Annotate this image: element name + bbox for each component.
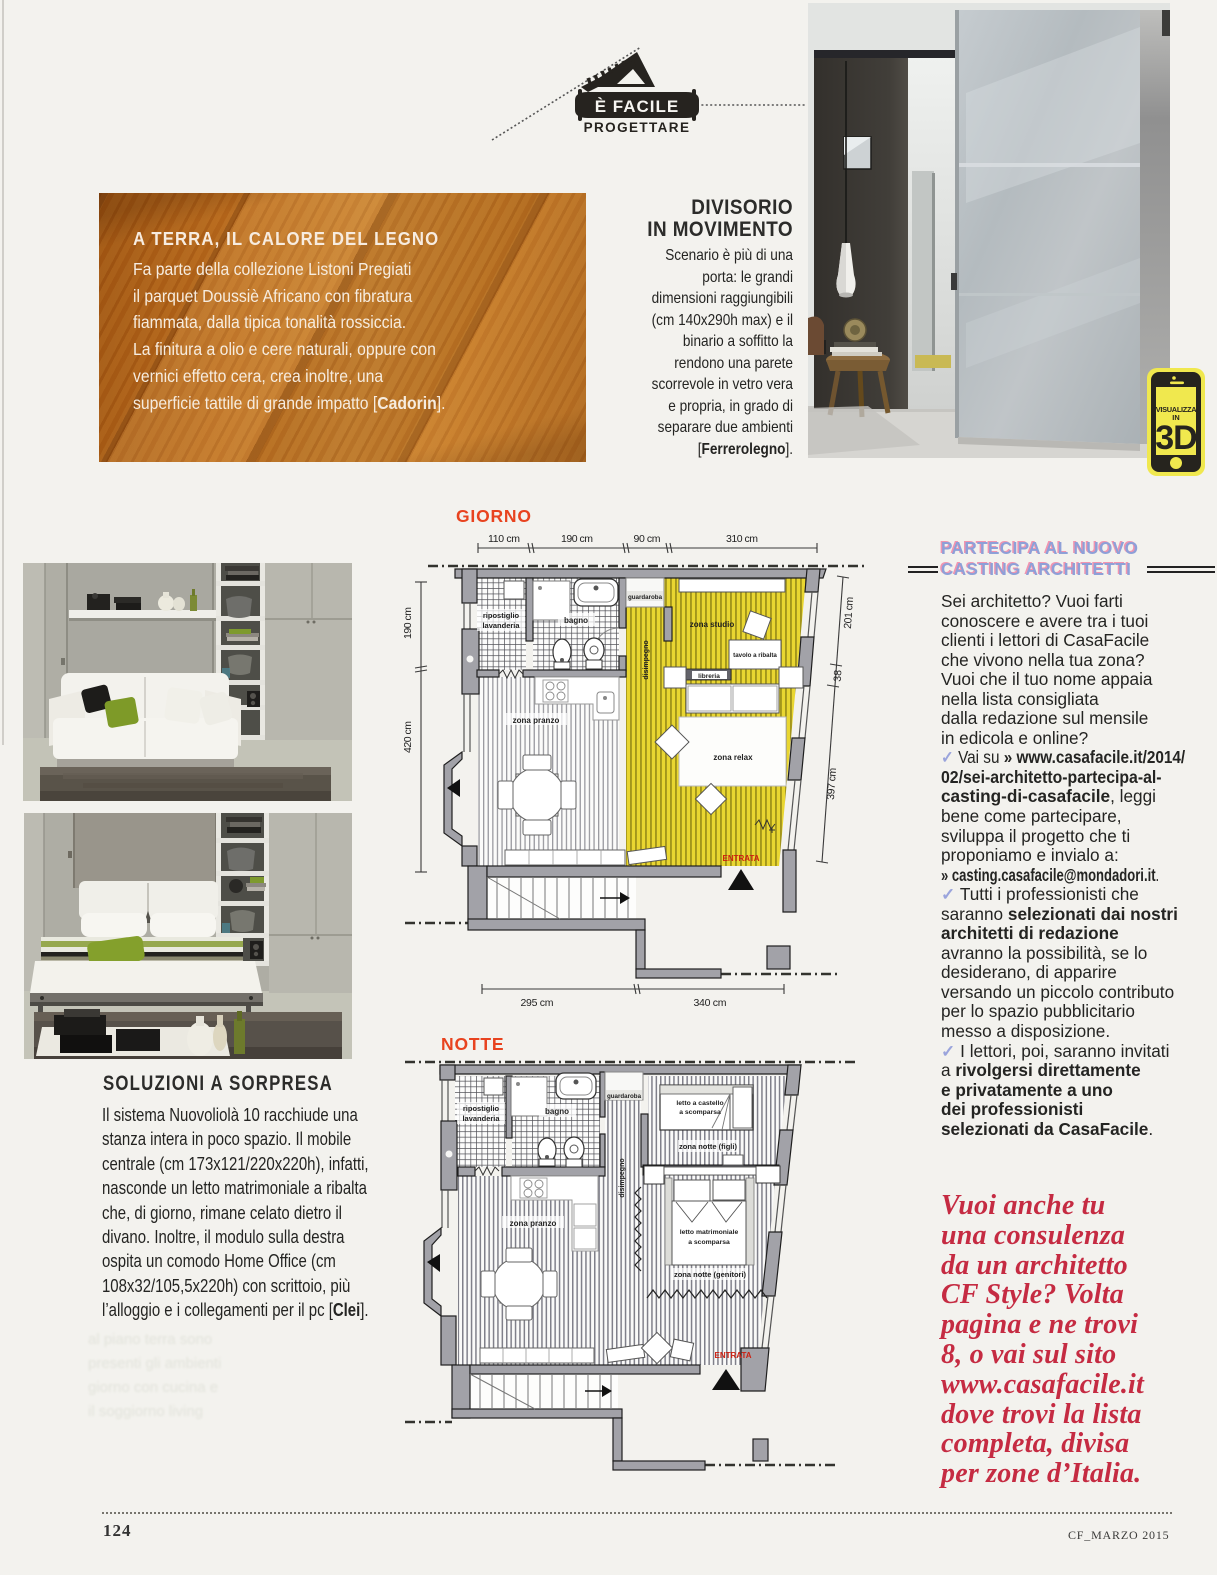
svg-text:disimpegno: disimpegno [619, 1158, 626, 1197]
svg-text:PROGETTARE: PROGETTARE [584, 120, 691, 135]
svg-text:ENTRATA: ENTRATA [722, 854, 759, 863]
svg-text:110 cm: 110 cm [488, 533, 520, 545]
svg-text:ripostiglio: ripostiglio [483, 611, 520, 620]
svg-text:a scomparsa: a scomparsa [679, 1109, 721, 1116]
svg-text:letto matrimoniale: letto matrimoniale [680, 1229, 739, 1236]
svg-text:190 cm: 190 cm [561, 533, 593, 545]
svg-text:ripostiglio: ripostiglio [463, 1104, 500, 1113]
svg-text:guardaroba: guardaroba [607, 1093, 642, 1100]
svg-text:295 cm: 295 cm [521, 997, 554, 1009]
svg-text:420 cm: 420 cm [402, 721, 414, 753]
svg-text:letto a castello: letto a castello [676, 1100, 723, 1107]
svg-text:90 cm: 90 cm [634, 533, 661, 545]
svg-text:zona relax: zona relax [713, 753, 753, 762]
svg-text:38: 38 [832, 669, 845, 682]
svg-text:NOTTE: NOTTE [441, 1034, 504, 1054]
svg-text:zona notte (genitori): zona notte (genitori) [674, 1270, 747, 1279]
svg-text:a scomparsa: a scomparsa [688, 1239, 730, 1246]
svg-text:lavanderia: lavanderia [462, 1114, 500, 1123]
svg-text:zona studio: zona studio [690, 620, 735, 629]
svg-text:GIORNO: GIORNO [456, 506, 532, 526]
svg-text:zona notte (figli): zona notte (figli) [679, 1142, 737, 1151]
svg-text:ENTRATA: ENTRATA [714, 1351, 751, 1360]
svg-text:disimpegno: disimpegno [643, 640, 650, 679]
svg-text:zona pranzo: zona pranzo [510, 1219, 557, 1228]
svg-text:3D: 3D [1155, 419, 1197, 457]
svg-text:È FACILE: È FACILE [595, 97, 680, 116]
svg-text:bagno: bagno [545, 1107, 569, 1116]
svg-text:190 cm: 190 cm [402, 607, 414, 639]
svg-text:zona pranzo: zona pranzo [513, 716, 560, 725]
svg-text:libreria: libreria [698, 673, 720, 680]
svg-text:bagno: bagno [564, 616, 588, 625]
svg-text:340 cm: 340 cm [694, 997, 727, 1009]
svg-text:201 cm: 201 cm [842, 596, 856, 629]
svg-text:lavanderia: lavanderia [482, 621, 520, 630]
svg-text:310 cm: 310 cm [726, 533, 758, 545]
svg-text:397 cm: 397 cm [825, 767, 839, 800]
svg-text:tavolo a ribalta: tavolo a ribalta [733, 652, 777, 659]
svg-text:guardaroba: guardaroba [628, 594, 663, 601]
